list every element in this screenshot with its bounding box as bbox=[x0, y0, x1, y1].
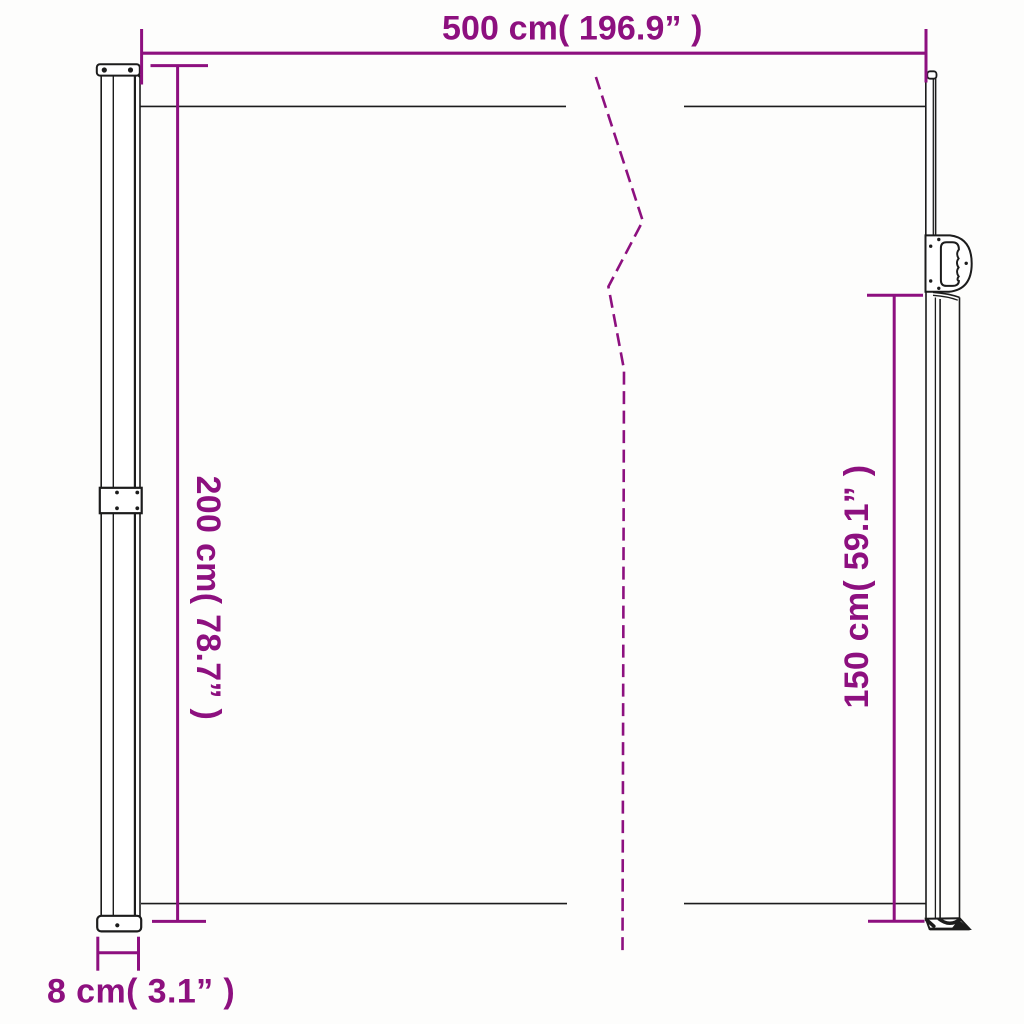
svg-text:500 cm( 196.9” ): 500 cm( 196.9” ) bbox=[442, 10, 703, 48]
svg-text:150 cm( 59.1” ): 150 cm( 59.1” ) bbox=[838, 465, 876, 709]
svg-text:200 cm( 78.7” ): 200 cm( 78.7” ) bbox=[189, 476, 227, 721]
svg-text:8 cm( 3.1” ): 8 cm( 3.1” ) bbox=[47, 973, 235, 1011]
